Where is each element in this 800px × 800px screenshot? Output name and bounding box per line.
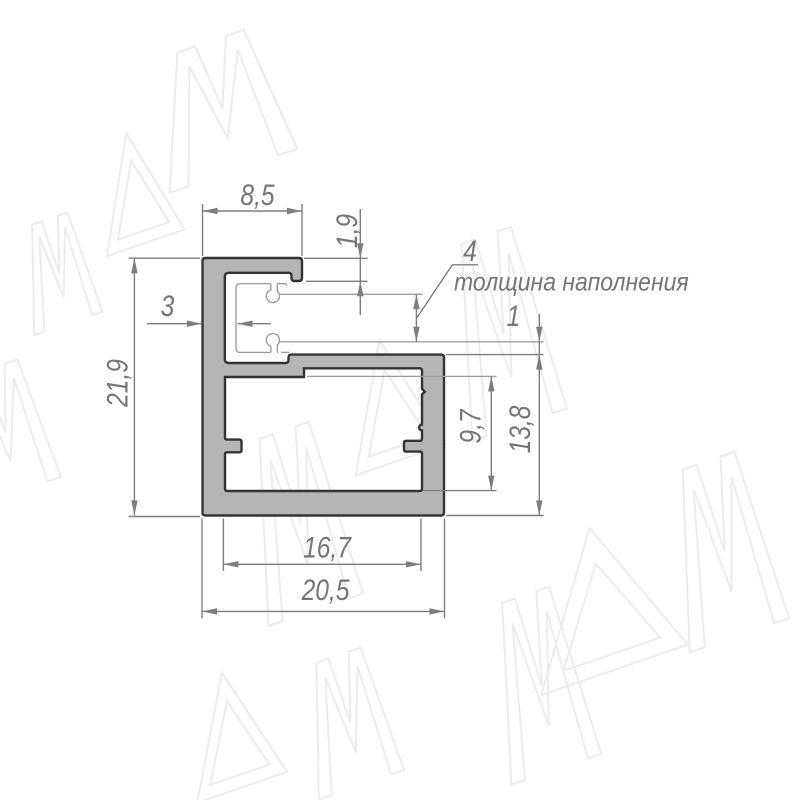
svg-text:16,7: 16,7 [303, 530, 352, 564]
svg-text:1,9: 1,9 [330, 214, 364, 248]
svg-text:21,9: 21,9 [100, 359, 134, 408]
svg-text:8,5: 8,5 [240, 178, 275, 212]
svg-text:1: 1 [507, 299, 521, 333]
svg-text:3: 3 [161, 289, 175, 323]
svg-text:9,7: 9,7 [453, 408, 487, 444]
svg-text:толщина наполнения: толщина наполнения [454, 268, 689, 297]
svg-text:20,5: 20,5 [301, 573, 350, 607]
svg-text:4: 4 [463, 234, 477, 268]
svg-text:13,8: 13,8 [503, 405, 537, 454]
